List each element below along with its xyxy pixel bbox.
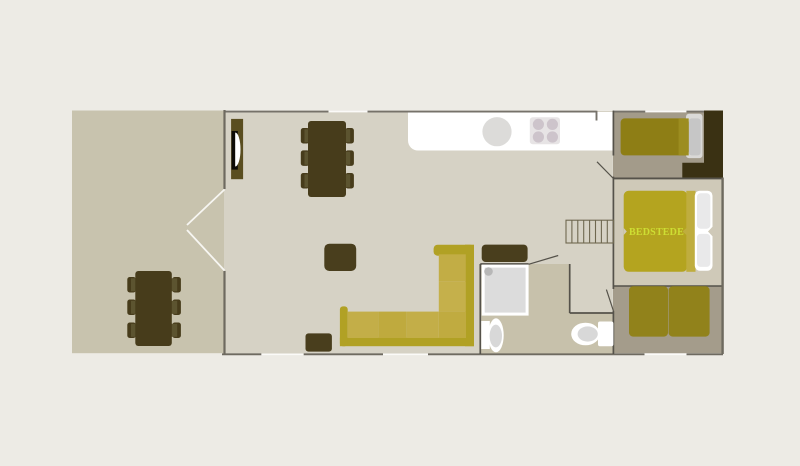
svg-text:BEDSTEDE: BEDSTEDE (629, 227, 684, 238)
